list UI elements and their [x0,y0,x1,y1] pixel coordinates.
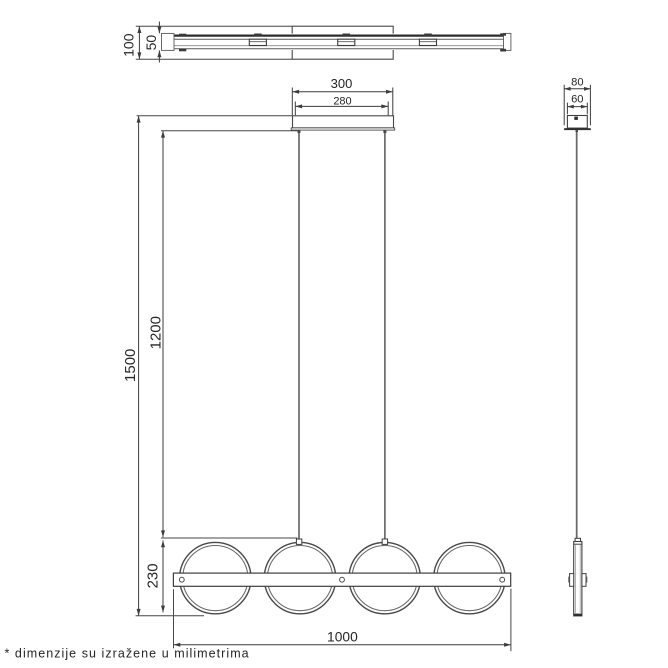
svg-text:50: 50 [143,35,159,51]
svg-text:100: 100 [121,33,137,57]
svg-text:230: 230 [144,563,161,588]
svg-text:60: 60 [571,94,583,106]
svg-text:* dimenzije su izražene u mili: * dimenzije su izražene u milimetrima [5,647,250,661]
svg-text:1200: 1200 [147,316,164,349]
svg-text:80: 80 [571,76,583,88]
svg-text:1500: 1500 [122,349,139,382]
svg-text:1000: 1000 [327,630,358,645]
svg-text:300: 300 [331,76,353,91]
svg-text:280: 280 [333,95,351,107]
